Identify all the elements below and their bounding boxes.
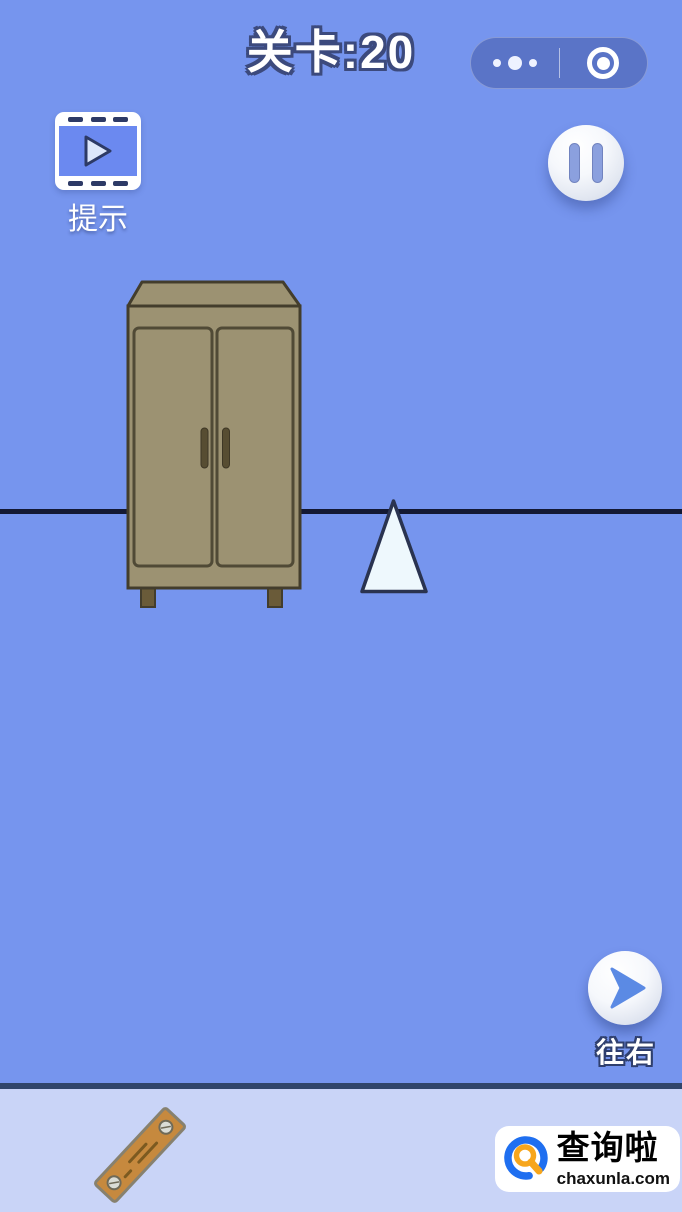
ellipsis-icon (493, 56, 537, 70)
wardrobe-door-left (134, 328, 212, 566)
play-triangle-icon (82, 134, 114, 168)
plank-board (94, 1107, 185, 1202)
arrow-right-icon (603, 967, 647, 1009)
record-circle-icon (587, 47, 619, 79)
game-screen: 关卡:20 提示 (0, 0, 682, 1212)
move-right-button[interactable]: 往右 (588, 951, 664, 1071)
wechat-capsule (470, 37, 648, 89)
wardrobe-top (128, 282, 300, 306)
video-play-icon (55, 112, 141, 190)
watermark-site-name: 查询啦 (557, 1131, 659, 1169)
watermark: 查询啦 chaxunla.com (495, 1126, 680, 1192)
film-strip-bottom (55, 176, 141, 190)
wooden-plank-item[interactable] (82, 1098, 198, 1212)
wardrobe-handle-right (223, 428, 230, 468)
video-screen (59, 126, 137, 176)
white-triangle[interactable] (345, 492, 445, 600)
hint-button[interactable]: 提示 (55, 112, 141, 238)
pause-button[interactable] (548, 125, 624, 201)
magnifier-q-icon (501, 1133, 553, 1185)
pause-icon (569, 143, 580, 183)
wardrobe[interactable] (100, 260, 320, 620)
move-right-label: 往右 (588, 1031, 664, 1071)
film-strip-top (55, 112, 141, 126)
exit-button[interactable] (560, 38, 648, 88)
arrow-ball (588, 951, 662, 1025)
wardrobe-handle-left (201, 428, 208, 468)
watermark-text: 查询啦 chaxunla.com (557, 1131, 670, 1187)
wardrobe-leg-left (141, 588, 155, 607)
wardrobe-leg-right (268, 588, 282, 607)
hint-label: 提示 (55, 194, 141, 238)
more-button[interactable] (471, 38, 559, 88)
watermark-site-domain: chaxunla.com (557, 1170, 670, 1187)
